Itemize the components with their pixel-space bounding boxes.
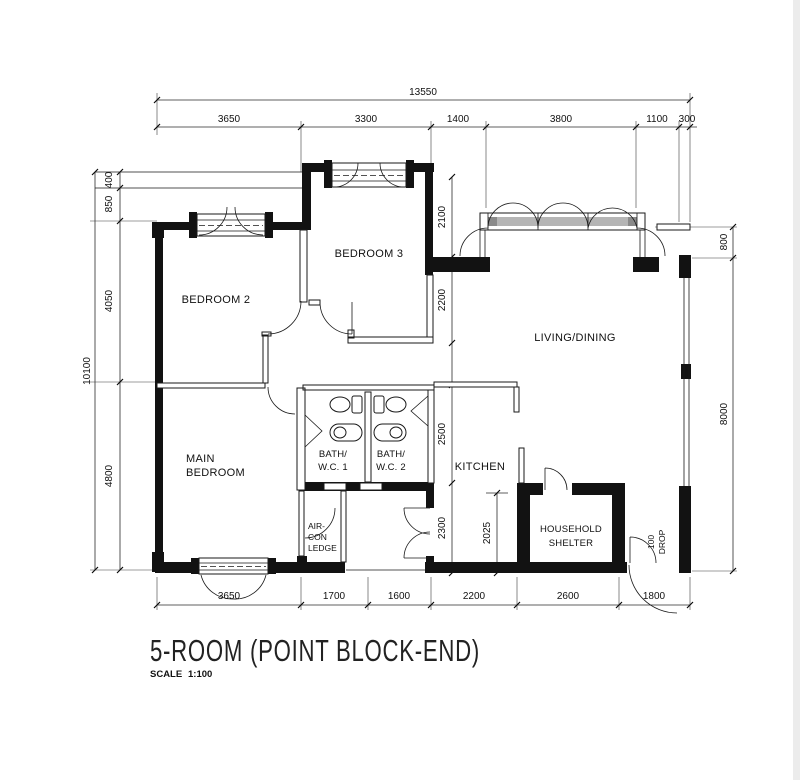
dim-kitchen-lower: 2300 bbox=[437, 516, 448, 539]
dim-left-total: 10100 bbox=[82, 357, 93, 385]
bath1-toilet-bowl bbox=[330, 397, 350, 412]
bedroom2-window-frame bbox=[197, 214, 265, 236]
dim-bed3-lower: 2200 bbox=[437, 288, 448, 311]
dim-bottom-5: 1800 bbox=[643, 591, 666, 602]
floor-plan-page: 13550 3650 3300 1400 3800 1100 300 10100… bbox=[0, 0, 800, 780]
drop-note-line2: DROP bbox=[657, 529, 667, 554]
room-label-bedroom3: BEDROOM 3 bbox=[335, 248, 404, 260]
bedroom3-window-frame bbox=[332, 163, 406, 187]
dim-top-1: 3300 bbox=[355, 114, 378, 125]
bedroom3-window bbox=[332, 163, 406, 187]
scale-value: 1:100 bbox=[188, 669, 212, 680]
room-label-aircon-line1: AIR- bbox=[308, 521, 325, 531]
room-label-main-bedroom-line1: MAIN bbox=[186, 453, 215, 465]
dim-top-3: 3800 bbox=[550, 114, 573, 125]
dim-bottom-4: 2600 bbox=[557, 591, 580, 602]
scale-label: SCALE bbox=[150, 669, 182, 680]
page-edge-strip bbox=[793, 0, 800, 780]
bay-window-glazing bbox=[488, 217, 637, 226]
room-label-shelter-line1: HOUSEHOLD bbox=[540, 524, 602, 535]
room-label-bath1-line2: W.C. 1 bbox=[318, 462, 348, 473]
dim-bottom-1: 1700 bbox=[323, 591, 346, 602]
bath2-toilet-bowl bbox=[386, 397, 406, 412]
dim-bottom-3: 2200 bbox=[463, 591, 486, 602]
dim-kitchen-upper: 2500 bbox=[437, 422, 448, 445]
dim-kitchen-clear: 2025 bbox=[482, 521, 493, 544]
bath2-vent-window bbox=[360, 483, 382, 490]
room-label-aircon-line3: LEDGE bbox=[308, 543, 337, 553]
drop-note-line1: 100 bbox=[646, 535, 656, 549]
dim-top-5: 300 bbox=[679, 114, 696, 125]
bath2-basin-bowl bbox=[390, 427, 402, 438]
bath2-toilet-tank bbox=[374, 396, 384, 413]
dim-left-2: 4050 bbox=[104, 289, 115, 312]
room-label-shelter-line2: SHELTER bbox=[549, 538, 594, 549]
room-label-bath1-line1: BATH/ bbox=[319, 449, 347, 460]
plan-title: 5-ROOM (POINT BLOCK-END) bbox=[150, 633, 480, 668]
dim-right-0: 800 bbox=[719, 233, 730, 250]
room-label-kitchen: KITCHEN bbox=[455, 461, 505, 473]
dim-bottom-0: 3650 bbox=[218, 591, 241, 602]
room-label-living-dining: LIVING/DINING bbox=[534, 332, 616, 344]
room-label-main-bedroom-line2: BEDROOM bbox=[186, 467, 245, 479]
room-label-bath2-line2: W.C. 2 bbox=[376, 462, 406, 473]
dim-top-4: 1100 bbox=[646, 114, 668, 125]
dim-right-1: 8000 bbox=[719, 402, 730, 425]
room-label-bath2-line1: BATH/ bbox=[377, 449, 405, 460]
dim-left-1: 850 bbox=[104, 195, 115, 212]
dim-bottom-2: 1600 bbox=[388, 591, 411, 602]
room-label-bedroom2: BEDROOM 2 bbox=[182, 294, 251, 306]
dim-top-total: 13550 bbox=[409, 87, 437, 98]
bath1-toilet-tank bbox=[352, 396, 362, 413]
bath1-basin-bowl bbox=[334, 427, 346, 438]
dim-top-2: 1400 bbox=[447, 114, 470, 125]
dim-top-0: 3650 bbox=[218, 114, 241, 125]
bay-window-glazing-end-left bbox=[488, 217, 497, 226]
dim-left-3: 4800 bbox=[104, 464, 115, 487]
dim-bed3-upper: 2100 bbox=[437, 205, 448, 228]
room-label-aircon-line2: CON bbox=[308, 532, 327, 542]
dim-left-0: 400 bbox=[104, 171, 115, 188]
main-bedroom-window-frame bbox=[199, 558, 268, 574]
bath1-vent-window bbox=[324, 483, 346, 490]
floor-plan: 13550 3650 3300 1400 3800 1100 300 10100… bbox=[0, 0, 800, 780]
